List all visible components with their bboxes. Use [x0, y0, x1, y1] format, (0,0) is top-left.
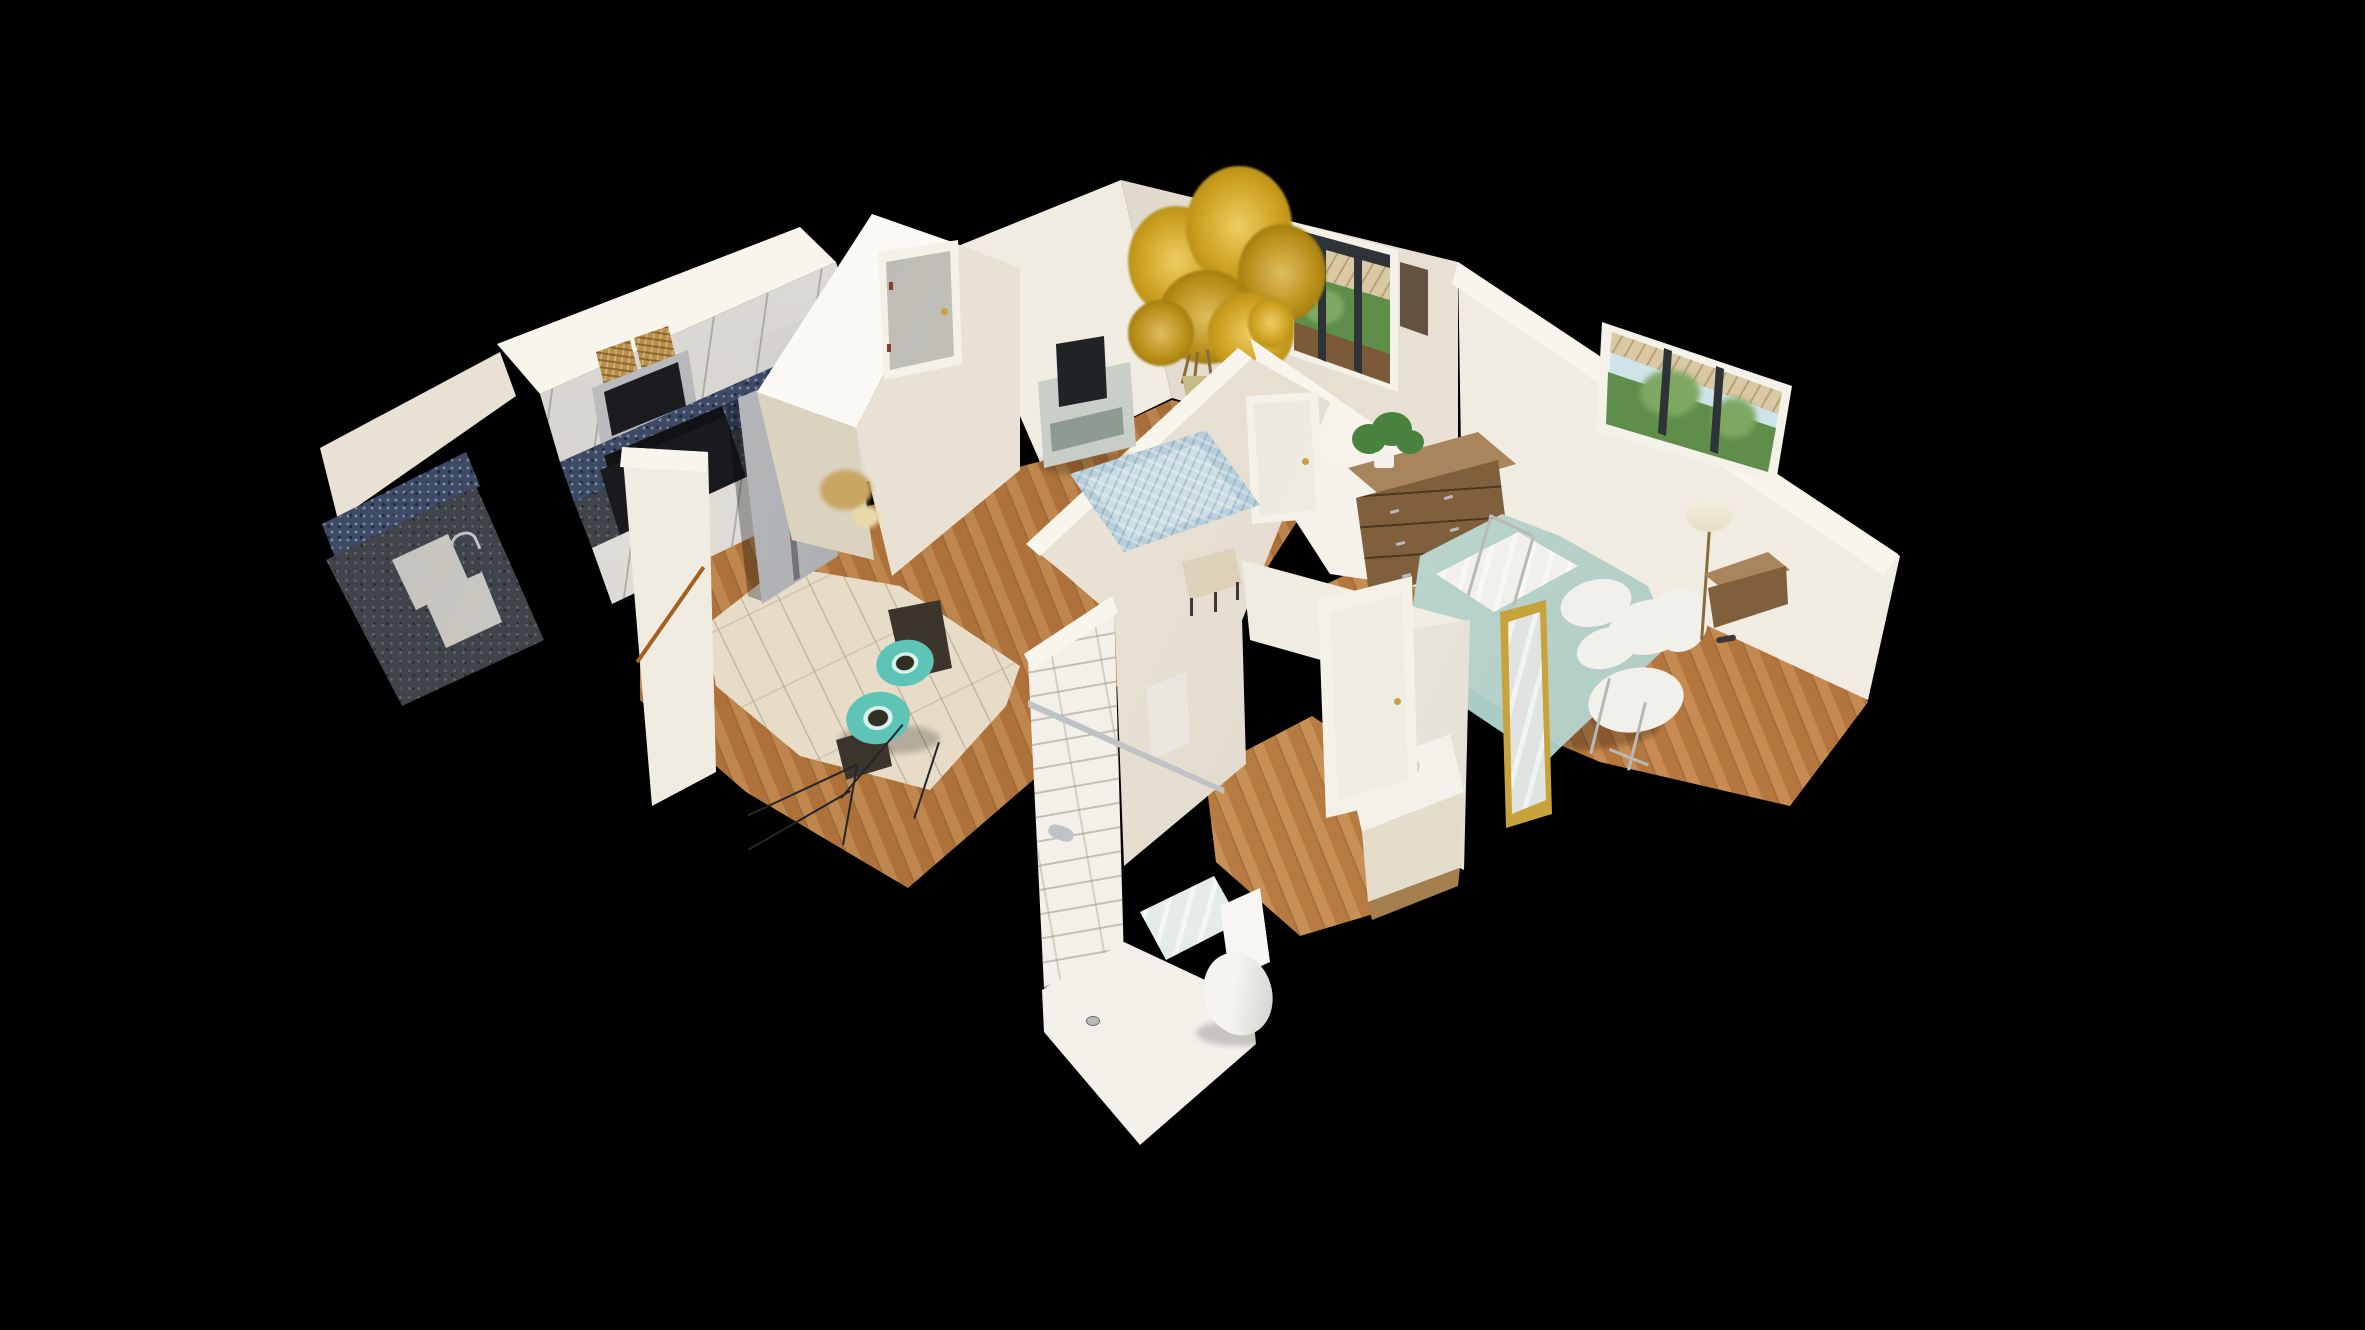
dollhouse-viewport[interactable] [0, 0, 2365, 1330]
tree-foliage [1128, 300, 1194, 366]
bathroom-door-knob [1394, 698, 1401, 705]
front-door-knob [941, 308, 948, 315]
scan-artifact-patch [820, 470, 872, 510]
dresser-plant [1396, 430, 1424, 454]
tree-foliage [1248, 298, 1294, 348]
closet-door-knob [1302, 458, 1309, 465]
bench-leg [1190, 598, 1193, 616]
bench-leg [1236, 582, 1239, 600]
shower-drain [1086, 1016, 1100, 1026]
door-hinge [887, 344, 891, 352]
floor-lamp-shade [1686, 498, 1732, 532]
plant-pot [1374, 452, 1394, 468]
bench-leg [1214, 592, 1217, 612]
door-hinge [889, 282, 893, 290]
scan-artifact-patch-2 [852, 506, 880, 528]
